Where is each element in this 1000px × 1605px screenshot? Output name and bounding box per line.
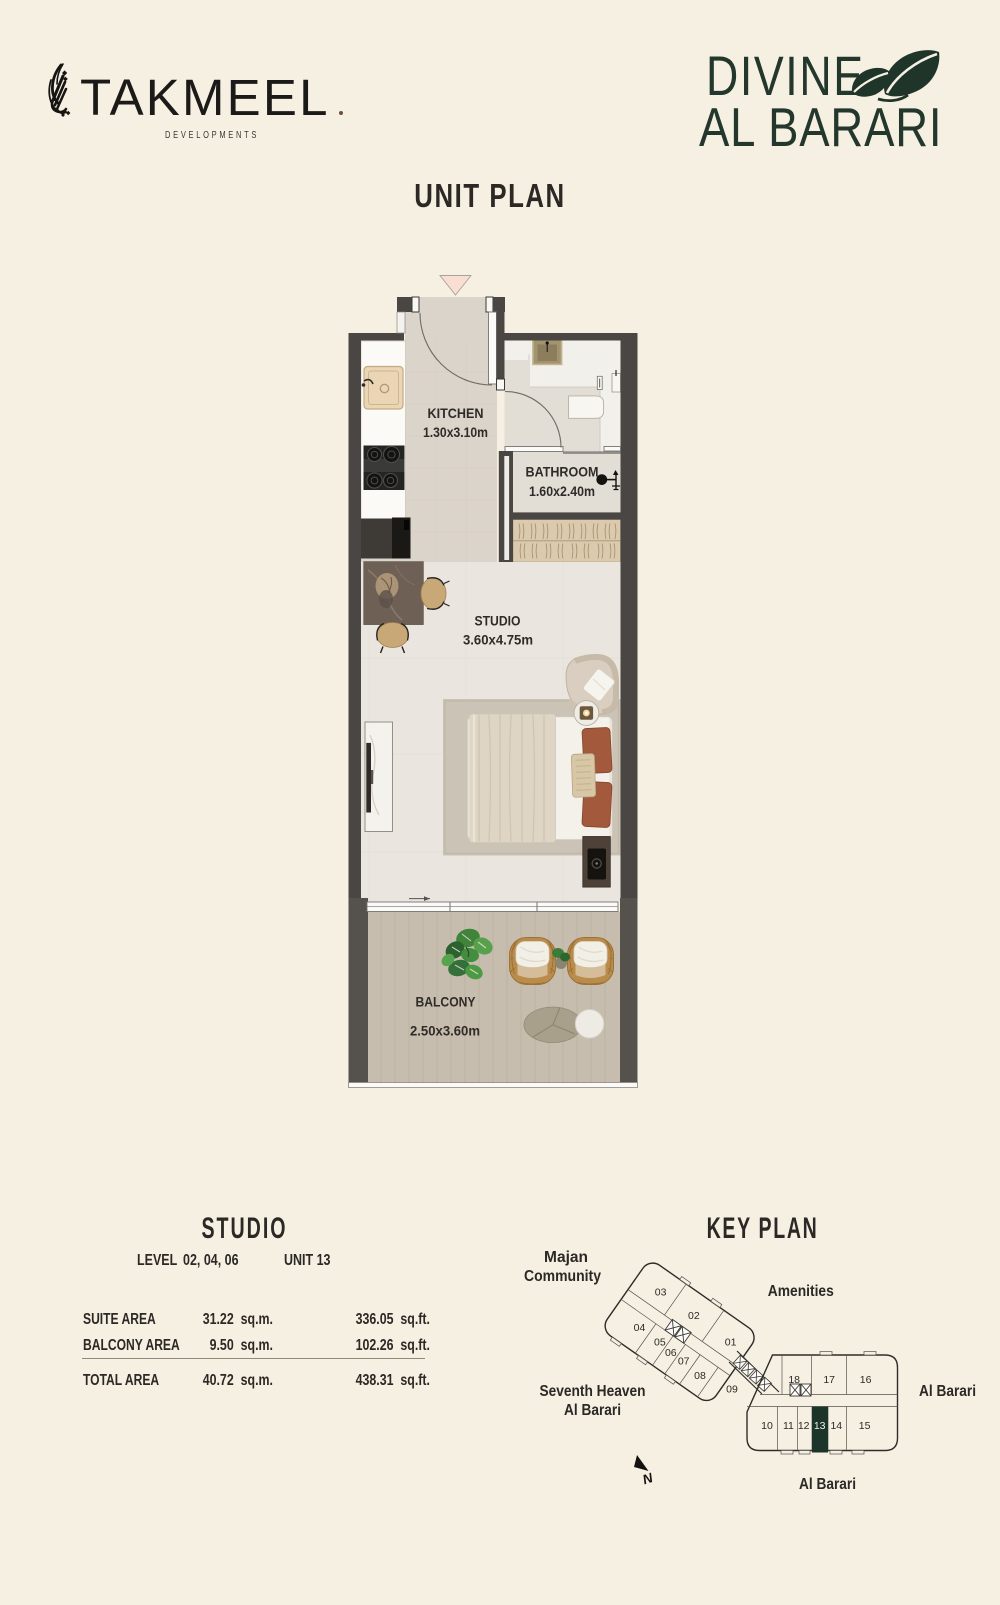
svg-text:N: N bbox=[641, 1470, 655, 1487]
svg-text:01: 01 bbox=[725, 1336, 737, 1348]
svg-text:16: 16 bbox=[860, 1374, 872, 1386]
svg-text:04: 04 bbox=[634, 1322, 646, 1334]
svg-text:07: 07 bbox=[678, 1355, 690, 1367]
svg-text:14: 14 bbox=[830, 1420, 842, 1432]
svg-text:08: 08 bbox=[694, 1370, 706, 1382]
svg-text:Majan: Majan bbox=[544, 1249, 588, 1266]
svg-text:11: 11 bbox=[783, 1420, 794, 1432]
svg-text:Al Barari: Al Barari bbox=[919, 1383, 976, 1400]
svg-text:18: 18 bbox=[788, 1374, 800, 1386]
svg-text:13: 13 bbox=[814, 1420, 826, 1432]
svg-text:15: 15 bbox=[859, 1420, 871, 1432]
svg-text:1.30x3.10m: 1.30x3.10m bbox=[423, 425, 488, 440]
svg-text:BALCONY: BALCONY bbox=[416, 995, 476, 1010]
svg-text:KITCHEN: KITCHEN bbox=[428, 406, 484, 421]
svg-text:12: 12 bbox=[798, 1420, 810, 1432]
svg-text:06: 06 bbox=[665, 1347, 677, 1359]
svg-text:Al Barari: Al Barari bbox=[564, 1402, 621, 1419]
svg-text:Community: Community bbox=[524, 1268, 601, 1285]
svg-text:03: 03 bbox=[655, 1286, 667, 1298]
svg-text:Amenities: Amenities bbox=[768, 1283, 834, 1300]
svg-text:10: 10 bbox=[761, 1420, 773, 1432]
svg-text:17: 17 bbox=[823, 1374, 835, 1386]
svg-text:STUDIO: STUDIO bbox=[475, 613, 521, 629]
svg-text:Seventh Heaven: Seventh Heaven bbox=[540, 1383, 646, 1400]
svg-text:1.60x2.40m: 1.60x2.40m bbox=[529, 484, 595, 499]
svg-text:2.50x3.60m: 2.50x3.60m bbox=[410, 1024, 480, 1039]
svg-text:3.60x4.75m: 3.60x4.75m bbox=[463, 632, 533, 648]
svg-text:09: 09 bbox=[726, 1383, 738, 1395]
svg-text:02: 02 bbox=[688, 1310, 700, 1322]
svg-text:BATHROOM: BATHROOM bbox=[526, 465, 599, 480]
svg-text:Al Barari: Al Barari bbox=[799, 1476, 856, 1493]
